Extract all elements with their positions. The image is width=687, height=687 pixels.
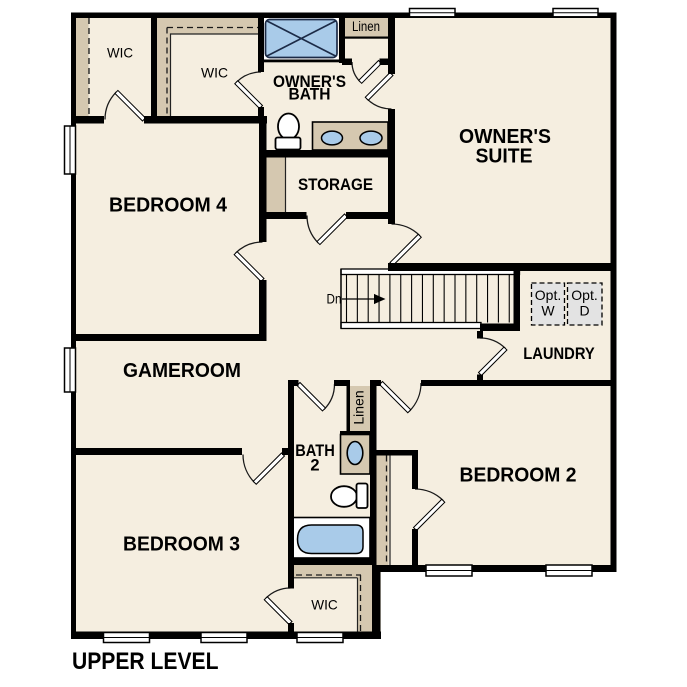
svg-text:WIC: WIC xyxy=(311,597,338,613)
svg-text:BEDROOM 3: BEDROOM 3 xyxy=(123,534,240,556)
svg-text:SUITE: SUITE xyxy=(476,146,533,168)
svg-text:Opt.: Opt. xyxy=(535,287,561,303)
svg-text:Opt.: Opt. xyxy=(571,287,597,303)
svg-text:W: W xyxy=(541,303,555,319)
svg-text:Linen: Linen xyxy=(351,390,367,424)
svg-text:D: D xyxy=(579,303,589,319)
svg-text:2: 2 xyxy=(310,457,319,475)
svg-text:GAMEROOM: GAMEROOM xyxy=(123,360,241,382)
svg-text:WIC: WIC xyxy=(107,45,133,61)
svg-text:Dn: Dn xyxy=(327,291,342,307)
svg-text:LAUNDRY: LAUNDRY xyxy=(523,345,595,363)
svg-text:WIC: WIC xyxy=(201,65,228,81)
svg-text:BEDROOM 2: BEDROOM 2 xyxy=(460,465,577,487)
svg-text:UPPER LEVEL: UPPER LEVEL xyxy=(72,648,219,675)
svg-text:Linen: Linen xyxy=(352,18,380,34)
svg-text:BATH: BATH xyxy=(289,86,331,104)
svg-text:STORAGE: STORAGE xyxy=(298,176,373,194)
svg-text:BEDROOM 4: BEDROOM 4 xyxy=(109,195,228,217)
